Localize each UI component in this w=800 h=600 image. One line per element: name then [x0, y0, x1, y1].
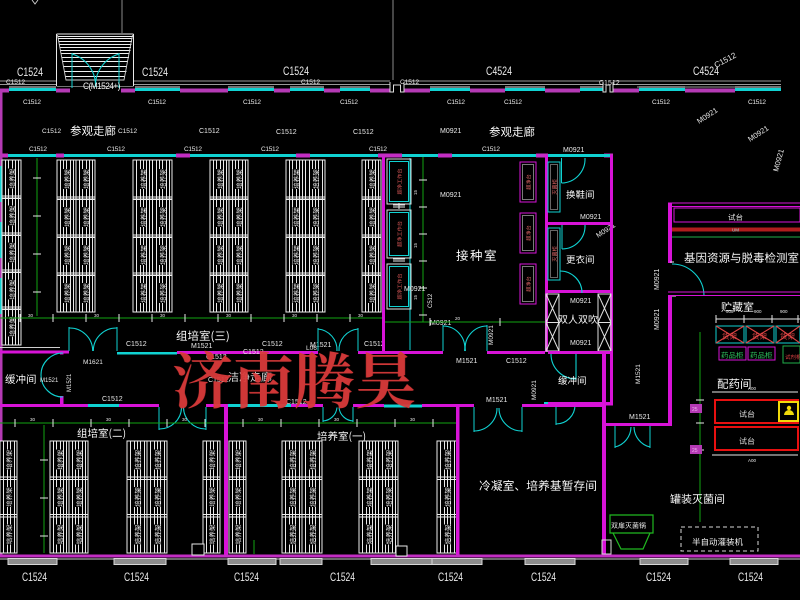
svg-text:25: 25 [692, 448, 698, 454]
svg-text:900: 900 [780, 309, 788, 314]
svg-text:30: 30 [30, 417, 36, 422]
svg-text:M1521: M1521 [456, 358, 478, 365]
svg-text:30: 30 [292, 313, 298, 318]
svg-text:M0921: M0921 [531, 380, 538, 400]
svg-text:C1512: C1512 [42, 128, 62, 135]
svg-text:20: 20 [455, 316, 461, 321]
svg-text:30: 30 [358, 313, 364, 318]
svg-text:C1512: C1512 [243, 99, 261, 106]
svg-text:C1512: C1512 [199, 128, 220, 135]
svg-text:C1512: C1512 [504, 99, 522, 106]
svg-text:30: 30 [334, 417, 340, 422]
svg-text:25: 25 [692, 407, 698, 413]
svg-text:C1512: C1512 [107, 146, 125, 153]
svg-text:30: 30 [410, 417, 416, 422]
svg-text:C1524: C1524 [17, 65, 43, 79]
svg-text:M1521: M1521 [486, 397, 508, 404]
svg-text:C1512: C1512 [301, 79, 321, 86]
svg-text:C512: C512 [428, 293, 434, 308]
svg-text:15: 15 [413, 189, 418, 195]
svg-text:C1524: C1524 [438, 572, 463, 584]
svg-text:A00: A00 [748, 458, 757, 463]
svg-text:C1512: C1512 [126, 341, 147, 348]
svg-text:M0921: M0921 [654, 268, 661, 290]
svg-text:C1512: C1512 [340, 99, 358, 106]
svg-text:UM: UM [732, 228, 739, 233]
svg-text:M1521: M1521 [40, 378, 59, 384]
svg-text:M0921: M0921 [654, 308, 661, 330]
svg-text:M0921: M0921 [580, 214, 602, 221]
svg-text:C1512: C1512 [482, 146, 500, 153]
svg-text:M0921: M0921 [404, 286, 426, 293]
svg-text:30: 30 [226, 313, 232, 318]
svg-text:M0921: M0921 [440, 192, 462, 199]
svg-text:900: 900 [754, 309, 762, 314]
svg-text:M1521: M1521 [629, 414, 651, 421]
svg-text:M0921: M0921 [563, 147, 585, 154]
svg-text:C1512: C1512 [599, 80, 620, 87]
svg-text:30: 30 [258, 417, 264, 422]
svg-text:C1524: C1524 [738, 572, 763, 584]
svg-text:C1512: C1512 [29, 146, 47, 153]
svg-text:30: 30 [160, 313, 166, 318]
svg-text:M0921: M0921 [430, 320, 452, 327]
svg-text:C1512: C1512 [400, 79, 420, 86]
svg-text:C4524: C4524 [486, 64, 512, 78]
svg-text:C1512: C1512 [148, 99, 166, 106]
svg-text:15: 15 [413, 294, 418, 300]
svg-text:C1512: C1512 [652, 99, 670, 106]
svg-text:C1512: C1512 [364, 341, 385, 348]
svg-text:L06: L06 [306, 345, 317, 352]
svg-text:C1524: C1524 [646, 572, 671, 584]
svg-text:C1512: C1512 [447, 99, 465, 106]
svg-text:M1521: M1521 [635, 364, 642, 384]
svg-text:C1524: C1524 [283, 64, 309, 78]
svg-text:A00: A00 [748, 386, 757, 391]
svg-text:30: 30 [94, 313, 100, 318]
svg-text:C1524: C1524 [330, 572, 355, 584]
svg-text:C1512: C1512 [23, 99, 41, 106]
svg-text:C1524: C1524 [22, 572, 47, 584]
svg-text:15: 15 [413, 242, 418, 248]
svg-text:M0921: M0921 [488, 325, 495, 345]
svg-text:M0921: M0921 [570, 340, 592, 347]
svg-text:C1512: C1512 [369, 146, 387, 153]
svg-text:C1512: C1512 [6, 79, 26, 86]
svg-text:C1512: C1512 [276, 129, 297, 136]
svg-text:C1524: C1524 [142, 65, 168, 79]
svg-text:C1524: C1524 [234, 572, 259, 584]
svg-text:C1524: C1524 [124, 572, 149, 584]
svg-text:C(M1524+): C(M1524+) [83, 81, 120, 92]
svg-text:M1521: M1521 [67, 373, 73, 392]
svg-text:C1512: C1512 [261, 146, 279, 153]
svg-text:M0921: M0921 [570, 298, 592, 305]
svg-text:C1512: C1512 [184, 146, 202, 153]
svg-text:M0921: M0921 [440, 128, 462, 135]
svg-text:C1512: C1512 [118, 128, 138, 135]
svg-text:M1521: M1521 [191, 343, 213, 350]
svg-text:C1512: C1512 [353, 129, 374, 136]
svg-text:30: 30 [28, 313, 34, 318]
svg-text:M1621: M1621 [83, 359, 103, 366]
svg-text:C1512: C1512 [748, 99, 766, 106]
svg-text:30: 30 [182, 417, 188, 422]
svg-text:30: 30 [106, 417, 112, 422]
svg-text:C1512: C1512 [506, 358, 527, 365]
svg-text:900: 900 [726, 309, 734, 314]
svg-text:C1524: C1524 [531, 572, 556, 584]
svg-text:C1512: C1512 [102, 396, 123, 403]
svg-text:C1512: C1512 [262, 341, 283, 348]
